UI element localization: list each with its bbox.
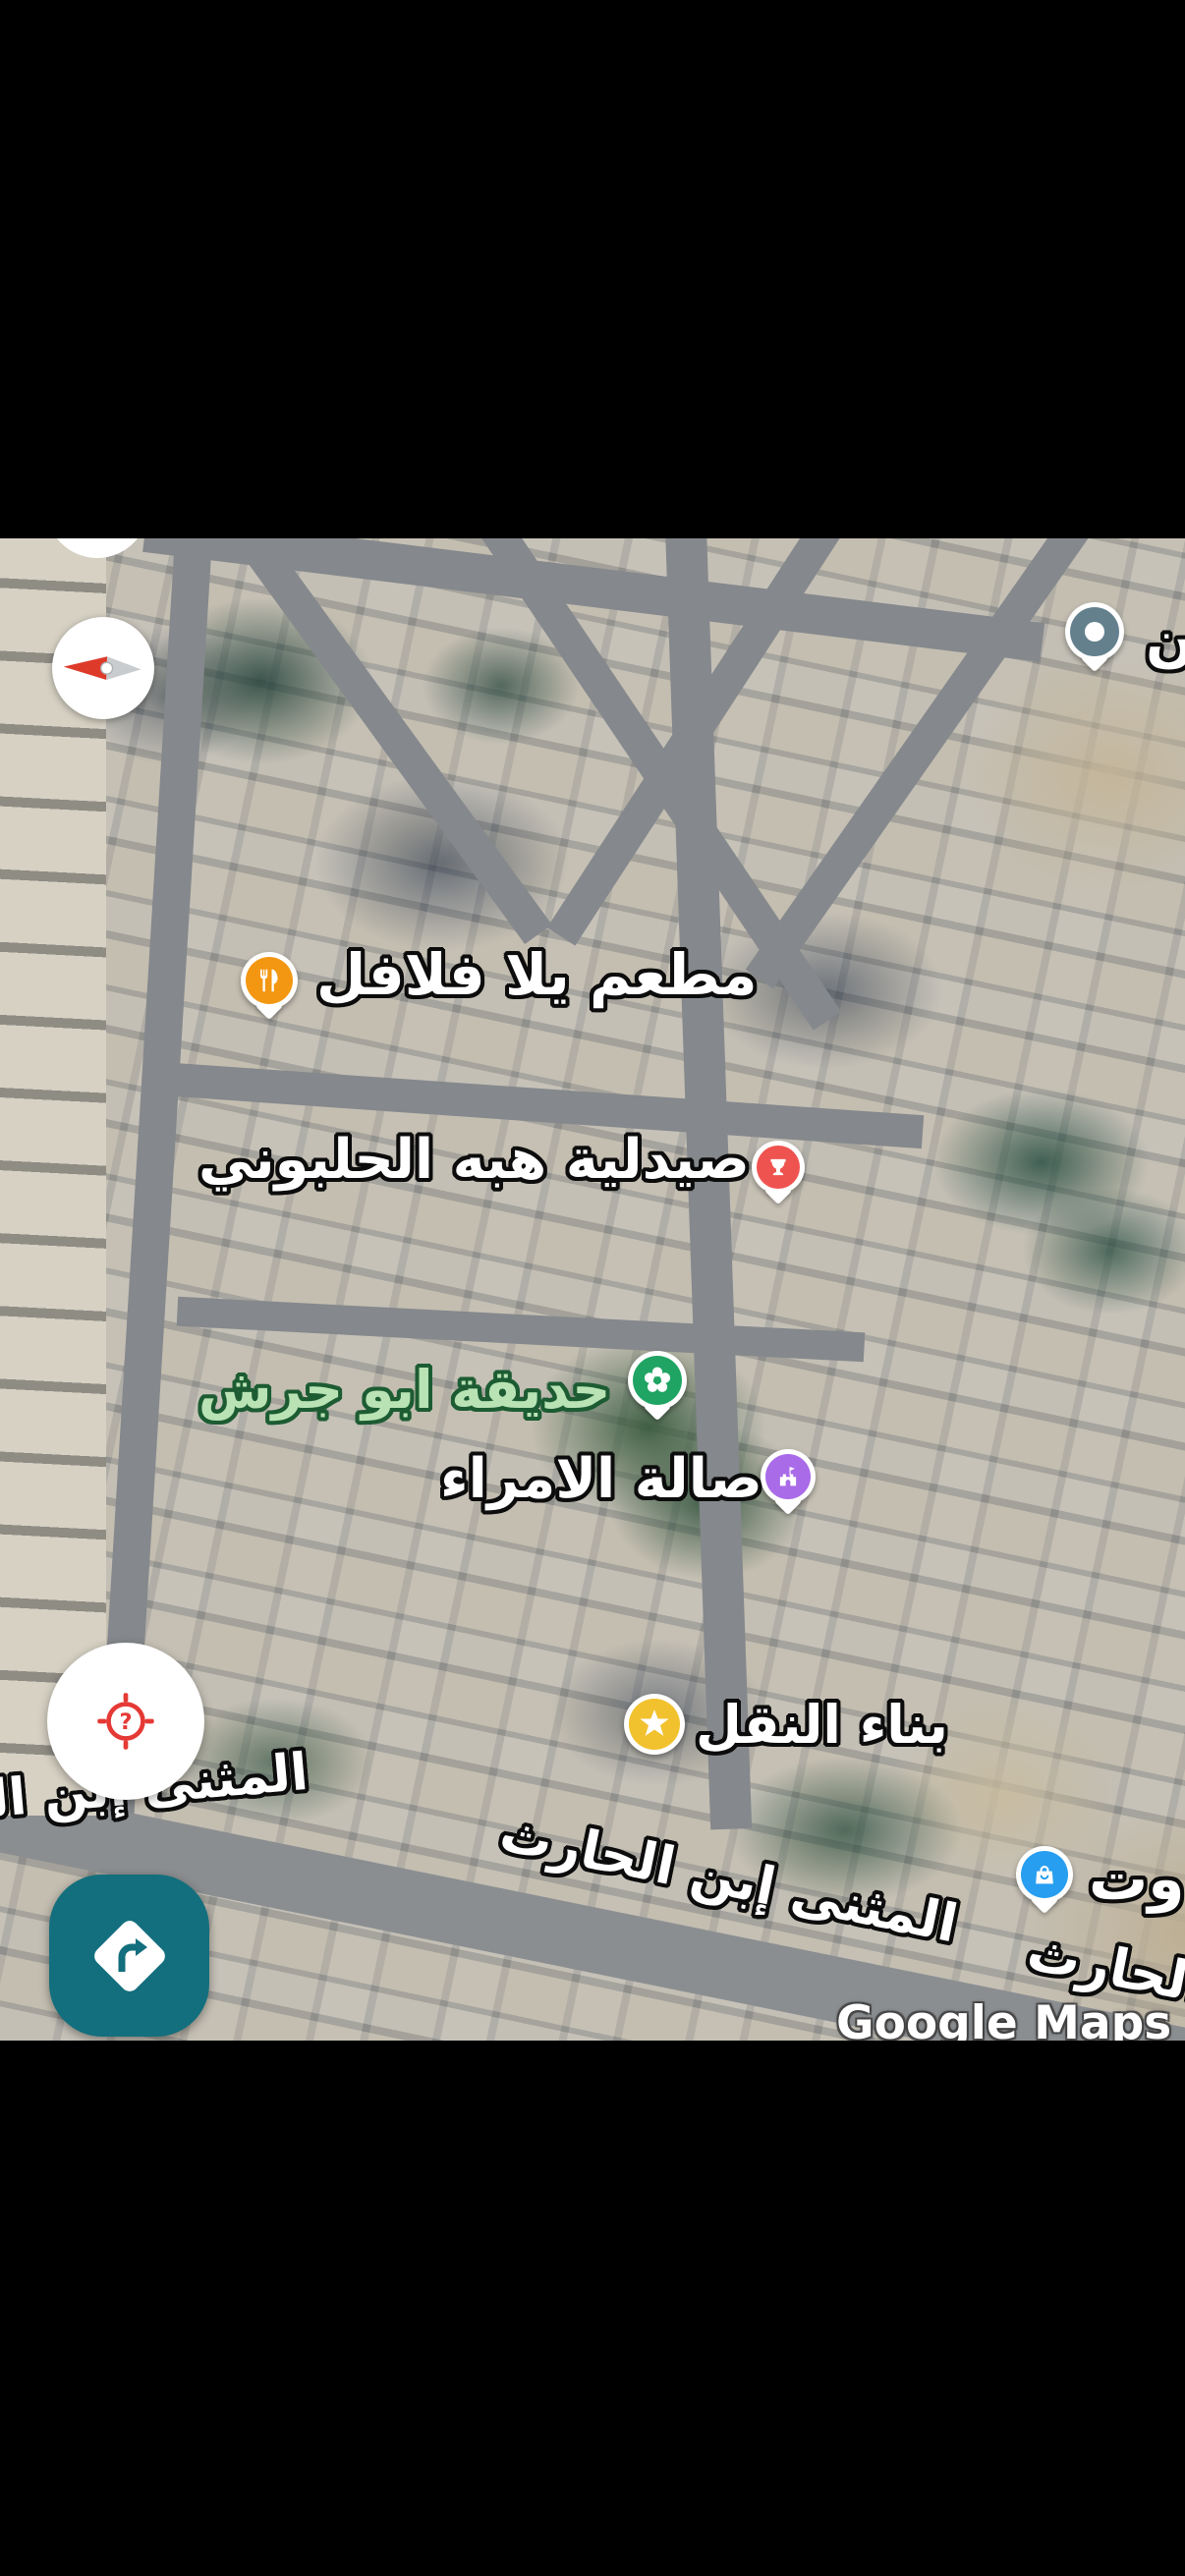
map-pin-restaurant[interactable]	[241, 952, 298, 1009]
phone-screen: Google Maps المثنى إبن الحارث المثنى إبن…	[0, 0, 1185, 2576]
warehouse-strip	[0, 538, 106, 1816]
label-partial-right-edge: وت	[1089, 1845, 1185, 1914]
dot-icon	[1070, 607, 1119, 656]
directions-diamond-icon	[85, 1911, 175, 2001]
map-pin-pharmacy[interactable]	[752, 1141, 805, 1194]
label-event-hall[interactable]: صالة الامراء	[440, 1447, 762, 1511]
bottom-letterbox-bar	[0, 2041, 1185, 2576]
label-saved-place[interactable]: بناء النقل	[696, 1694, 948, 1756]
top-letterbox-bar	[0, 0, 1185, 538]
label-park[interactable]: حديقة ابو جرش	[198, 1359, 610, 1421]
svg-text:?: ?	[119, 1709, 132, 1735]
my-location-button[interactable]: ?	[47, 1643, 204, 1800]
map-pin-saved-star[interactable]	[624, 1694, 685, 1755]
pharmacy-icon	[757, 1146, 800, 1189]
map-pin-generic[interactable]	[1065, 602, 1124, 661]
label-partial-top-right: ن	[1146, 607, 1185, 674]
road	[177, 1297, 866, 1363]
map-pin-event-hall[interactable]	[761, 1449, 816, 1504]
map-pin-park[interactable]	[628, 1351, 687, 1410]
road	[201, 538, 552, 944]
compass-needle-icon	[58, 623, 147, 712]
map-pin-shopping[interactable]	[1016, 1846, 1073, 1903]
label-restaurant[interactable]: مطعم يلا فلافل	[316, 941, 758, 1008]
restaurant-icon	[246, 957, 293, 1004]
google-maps-watermark: Google Maps	[836, 1996, 1171, 2041]
star-icon	[629, 1699, 680, 1750]
compass-button[interactable]	[52, 617, 154, 719]
flower-icon	[633, 1356, 682, 1405]
location-unknown-target-icon: ?	[87, 1683, 164, 1760]
shopping-bag-icon	[1021, 1851, 1068, 1898]
venue-icon	[765, 1454, 811, 1499]
road	[95, 538, 212, 1833]
satellite-map[interactable]: Google Maps المثنى إبن الحارث المثنى إبن…	[0, 538, 1185, 2041]
label-pharmacy[interactable]: صيدلية هبه الحلبوني	[198, 1128, 750, 1192]
directions-button[interactable]	[49, 1875, 209, 2037]
